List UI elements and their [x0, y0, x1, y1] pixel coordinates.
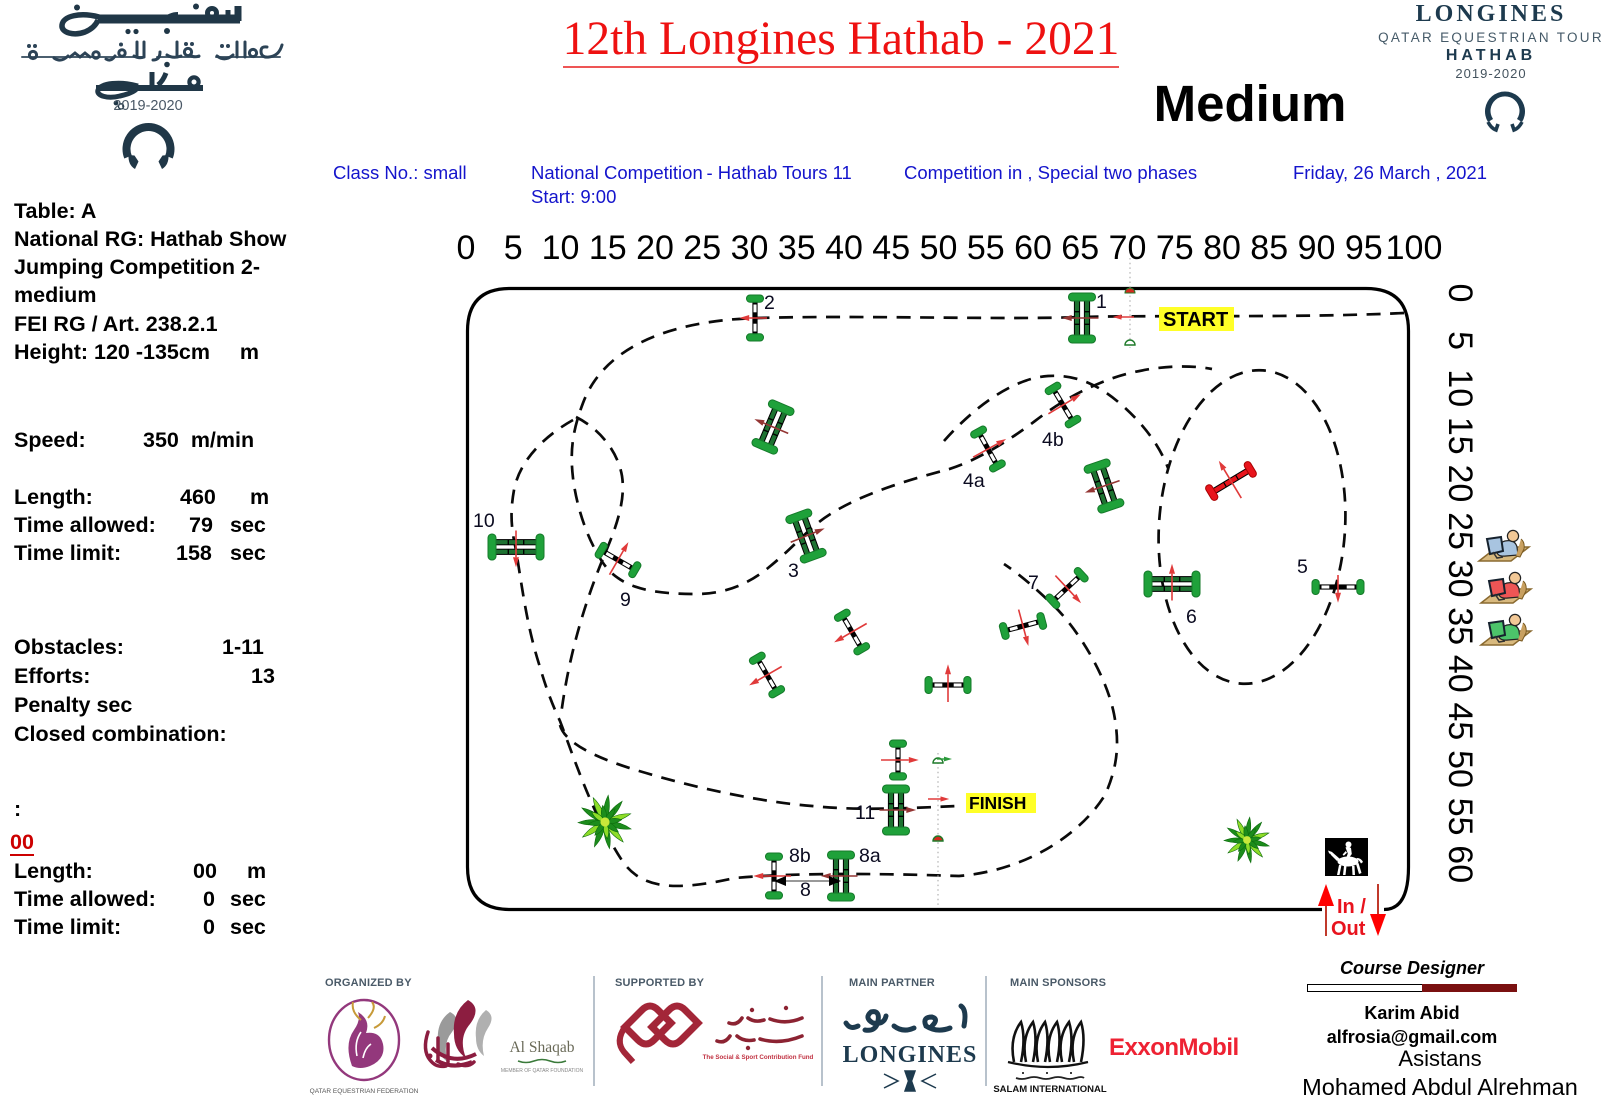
svg-text:45: 45: [1441, 702, 1479, 740]
svg-text:START: START: [1163, 309, 1228, 331]
svg-text:40: 40: [1441, 655, 1479, 693]
svg-text:In /: In /: [1337, 896, 1366, 918]
svg-text:70: 70: [1109, 229, 1147, 267]
svg-text:9: 9: [620, 589, 631, 611]
svg-text:30: 30: [731, 229, 769, 267]
svg-text:0: 0: [1441, 284, 1479, 303]
svg-text:SALAM INTERNATIONAL: SALAM INTERNATIONAL: [993, 1084, 1106, 1095]
svg-text:0: 0: [457, 229, 476, 267]
svg-text:4b: 4b: [1042, 429, 1064, 451]
svg-text:3: 3: [788, 560, 799, 582]
svg-text:8a: 8a: [859, 845, 881, 867]
svg-text:15: 15: [1441, 417, 1479, 455]
svg-text:5: 5: [1297, 556, 1308, 578]
svg-text:8b: 8b: [789, 845, 811, 867]
svg-text:7: 7: [1028, 572, 1039, 594]
svg-text:The Social & Sport Contributio: The Social & Sport Contribution Fund: [703, 1054, 814, 1061]
svg-text:60: 60: [1441, 845, 1479, 883]
svg-text:1: 1: [1096, 291, 1107, 313]
svg-text:25: 25: [683, 229, 721, 267]
svg-text:50: 50: [920, 229, 958, 267]
svg-text:35: 35: [1441, 607, 1479, 645]
svg-text:15: 15: [589, 229, 627, 267]
svg-text:ExxonMobil: ExxonMobil: [1109, 1034, 1239, 1061]
svg-text:55: 55: [967, 229, 1005, 267]
svg-text:50: 50: [1441, 750, 1479, 788]
svg-text:Out: Out: [1331, 918, 1366, 940]
svg-text:95: 95: [1345, 229, 1383, 267]
svg-text:2: 2: [764, 292, 775, 314]
svg-text:40: 40: [825, 229, 863, 267]
svg-text:FINISH: FINISH: [969, 793, 1026, 813]
svg-text:35: 35: [778, 229, 816, 267]
svg-text:60: 60: [1014, 229, 1052, 267]
svg-text:MEMBER OF QATAR FOUNDATION: MEMBER OF QATAR FOUNDATION: [501, 1068, 584, 1074]
svg-text:30: 30: [1441, 560, 1479, 598]
svg-text:6: 6: [1186, 606, 1197, 628]
svg-text:4a: 4a: [963, 470, 985, 492]
svg-text:5: 5: [504, 229, 523, 267]
svg-text:90: 90: [1298, 229, 1336, 267]
svg-text:55: 55: [1441, 798, 1479, 836]
svg-text:11: 11: [855, 802, 875, 824]
svg-text:8: 8: [800, 879, 811, 901]
svg-text:10: 10: [542, 229, 580, 267]
svg-text:20: 20: [636, 229, 674, 267]
svg-text:10: 10: [1441, 369, 1479, 407]
svg-text:75: 75: [1156, 229, 1194, 267]
svg-text:80: 80: [1203, 229, 1241, 267]
svg-text:85: 85: [1250, 229, 1288, 267]
svg-text:45: 45: [872, 229, 910, 267]
svg-text:10: 10: [473, 510, 495, 532]
svg-text:Al Shaqab: Al Shaqab: [509, 1039, 574, 1056]
svg-text:20: 20: [1441, 464, 1479, 502]
svg-text:LONGINES: LONGINES: [843, 1042, 978, 1068]
svg-text:QATAR EQUESTRIAN FEDERATION: QATAR EQUESTRIAN FEDERATION: [310, 1088, 419, 1095]
svg-text:65: 65: [1061, 229, 1099, 267]
svg-text:5: 5: [1441, 331, 1479, 350]
svg-text:25: 25: [1441, 512, 1479, 550]
svg-text:100: 100: [1386, 229, 1443, 267]
